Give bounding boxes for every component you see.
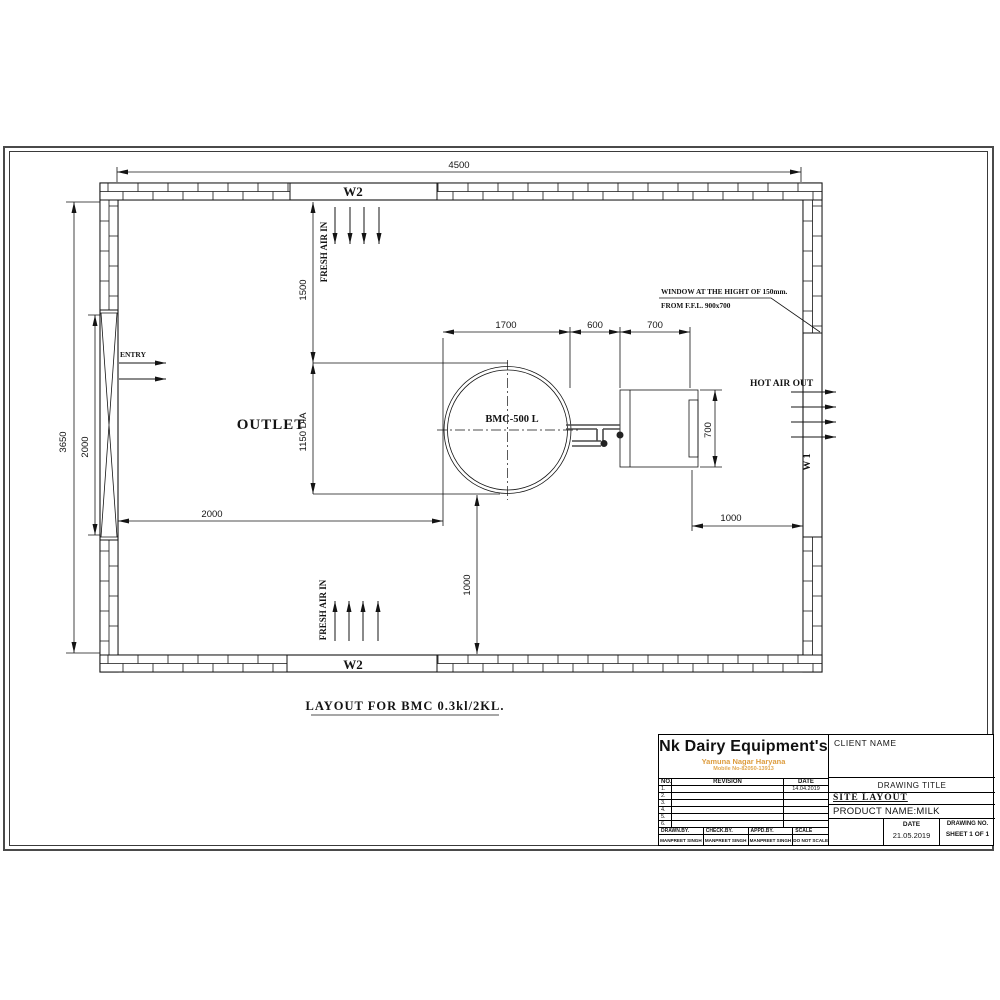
floor-plan-svg: BMC-500 L 4500 3650 2000 — [0, 0, 1000, 1000]
dim-bottom-clear: 1000 — [462, 574, 473, 595]
empty-cell — [829, 819, 884, 845]
dim-overall-height: 3650 — [58, 431, 69, 452]
rev-no: 3. — [659, 800, 672, 806]
label-w2-bottom: W2 — [343, 657, 363, 672]
rev-no: 5. — [659, 814, 672, 820]
company-mobile: Mobile No-82050-13913 — [659, 766, 828, 772]
condenser-body — [620, 390, 698, 467]
dim-front-clear: 1500 — [298, 279, 309, 300]
brick-top-right — [437, 183, 822, 200]
client-name-cell: CLIENT NAME — [829, 735, 995, 778]
dim-condenser-w: 700 — [647, 320, 663, 331]
scale-label: SCALE — [793, 827, 828, 835]
drawn-by-cell: DRAWN.BY. MANPREET SINGH — [659, 827, 704, 845]
tank: BMC-500 L — [437, 360, 578, 500]
label-fresh-air-top: FRESH AIR IN — [319, 221, 329, 282]
brick-bottom-right — [437, 655, 822, 672]
check-by-label: CHECK.BY. — [704, 827, 748, 835]
date-label: DATE — [884, 821, 939, 828]
revision-header: REVISION — [672, 779, 784, 785]
drawn-by-value: MANPREET SINGH — [659, 835, 703, 845]
rev-date — [784, 814, 828, 820]
revision-date-header: DATE — [784, 779, 828, 785]
dim-tank-zone: 1700 — [495, 320, 516, 331]
pipe-valve2-icon — [617, 432, 624, 439]
rev-desc — [672, 814, 784, 820]
label-hot-air: HOT AIR OUT — [750, 379, 814, 389]
brick-right-upper — [803, 200, 822, 333]
company-name: Nk Dairy Equipment's — [659, 738, 828, 756]
dim-overall-width: 4500 — [448, 160, 469, 171]
title-block-right: CLIENT NAME DRAWING TITLE SITE LAYOUT PR… — [829, 735, 995, 845]
title-block: Nk Dairy Equipment's Yamuna Nagar Haryan… — [658, 734, 994, 846]
drawing-title-label: DRAWING TITLE — [829, 778, 995, 793]
brick-bottom-left — [100, 655, 287, 672]
appd-by-value: MANPREET SINGH — [749, 835, 793, 845]
scale-value: DO NOT SCALE — [793, 835, 828, 845]
label-fresh-air-bottom: FRESH AIR IN — [318, 579, 328, 640]
dim-gap: 600 — [587, 320, 603, 331]
revision-row: 2. — [659, 793, 828, 800]
rev-desc — [672, 800, 784, 806]
company-block: Nk Dairy Equipment's Yamuna Nagar Haryan… — [659, 735, 828, 779]
rev-no: 2. — [659, 793, 672, 799]
label-outlet: OUTLET — [237, 417, 306, 433]
pipe-valve-icon — [601, 440, 608, 447]
dim-condenser-h: 700 — [703, 422, 714, 438]
revision-row: 3. — [659, 800, 828, 807]
label-entry: ENTRY — [120, 350, 147, 359]
drawing-caption: LAYOUT FOR BMC 0.3kl/2KL. — [306, 699, 505, 713]
window-note-line2: FROM F.F.L. 900x700 — [661, 301, 731, 310]
revision-row: 4. — [659, 807, 828, 814]
rev-desc — [672, 793, 784, 799]
revision-row: 5. — [659, 814, 828, 821]
pipe — [566, 425, 620, 446]
dim-tank-offset: 2000 — [201, 509, 222, 520]
dim-right-clear: 1000 — [720, 513, 741, 524]
rev-desc — [672, 786, 784, 792]
revision-row: 1. 14.04.2019 — [659, 786, 828, 793]
rev-desc — [672, 807, 784, 813]
rev-date — [784, 800, 828, 806]
brick-top-left — [100, 183, 290, 200]
revision-table: NO. REVISION DATE 1. 14.04.2019 2. 3. — [659, 779, 828, 827]
label-w2-top: W2 — [343, 184, 363, 199]
brick-right-lower — [803, 537, 822, 655]
brick-left-upper — [100, 200, 118, 310]
drawing-sheet: BMC-500 L 4500 3650 2000 — [0, 0, 1000, 1000]
rev-date: 14.04.2019 — [784, 786, 828, 792]
dim-entry-door: 2000 — [80, 436, 91, 457]
tank-label: BMC-500 L — [485, 414, 538, 425]
signature-row: DRAWN.BY. MANPREET SINGH CHECK.BY. MANPR… — [659, 827, 828, 845]
rev-date — [784, 793, 828, 799]
drawn-by-label: DRAWN.BY. — [659, 827, 703, 835]
rev-date — [784, 807, 828, 813]
check-by-cell: CHECK.BY. MANPREET SINGH — [704, 827, 749, 845]
drawing-no-cell: DRAWING NO. SHEET 1 OF 1 — [940, 819, 995, 845]
sheet-value: SHEET 1 OF 1 — [940, 831, 995, 838]
rev-no: 4. — [659, 807, 672, 813]
appd-by-cell: APPD.BY. MANPREET SINGH — [749, 827, 794, 845]
airflow — [119, 207, 836, 641]
condenser-panel — [689, 400, 698, 457]
title-block-left: Nk Dairy Equipment's Yamuna Nagar Haryan… — [659, 735, 829, 845]
date-value: 21.05.2019 — [884, 831, 939, 840]
label-w1: W 1 — [802, 453, 813, 470]
revision-no-header: NO. — [659, 779, 672, 785]
company-address: Yamuna Nagar Haryana — [659, 757, 828, 766]
check-by-value: MANPREET SINGH — [704, 835, 748, 845]
appd-by-label: APPD.BY. — [749, 827, 793, 835]
date-cell: DATE 21.05.2019 — [884, 819, 940, 845]
revision-header-row: NO. REVISION DATE — [659, 779, 828, 786]
title-block-bottom-row: DATE 21.05.2019 DRAWING NO. SHEET 1 OF 1 — [829, 819, 995, 845]
drawing-title-value: SITE LAYOUT — [829, 793, 995, 805]
condensing-unit — [566, 390, 698, 467]
scale-cell: SCALE DO NOT SCALE — [793, 827, 828, 845]
rev-no: 1. — [659, 786, 672, 792]
drawing-no-label: DRAWING NO. — [940, 821, 995, 827]
brick-left-lower — [100, 540, 118, 655]
window-note-line1: WINDOW AT THE HIGHT OF 150mm. — [661, 287, 788, 296]
dimensions: 4500 3650 2000 1500 1150 DIA 1700 600 70… — [58, 160, 803, 654]
product-name-cell: PRODUCT NAME:MILK — [829, 805, 995, 819]
